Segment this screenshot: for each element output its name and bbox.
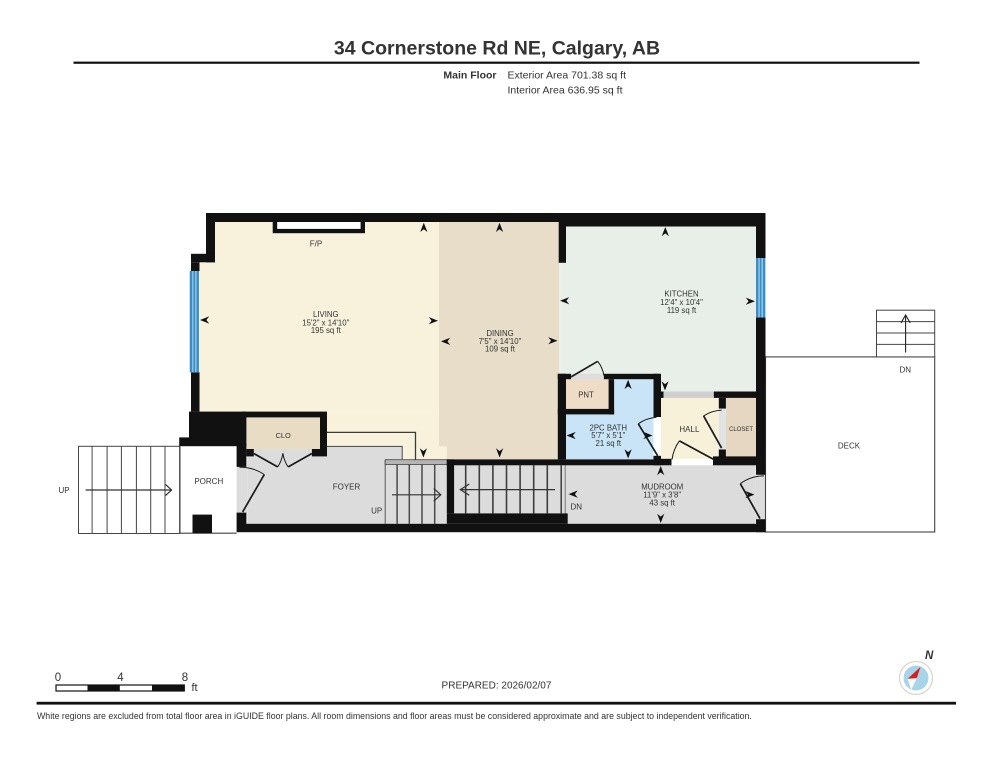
- svg-text:PNT: PNT: [578, 390, 594, 399]
- svg-text:4: 4: [117, 672, 124, 684]
- svg-text:8: 8: [182, 672, 188, 684]
- svg-text:195 sq ft: 195 sq ft: [311, 326, 342, 335]
- svg-text:34 Cornerstone Rd NE, Calgary,: 34 Cornerstone Rd NE, Calgary, AB: [334, 38, 660, 60]
- svg-text:White regions are excluded fro: White regions are excluded from total fl…: [37, 711, 752, 721]
- svg-text:109 sq ft: 109 sq ft: [485, 345, 516, 354]
- svg-text:21 sq ft: 21 sq ft: [596, 439, 622, 448]
- svg-text:ft: ft: [192, 682, 198, 694]
- svg-text:119 sq ft: 119 sq ft: [667, 306, 697, 315]
- svg-text:Main Floor: Main Floor: [443, 69, 496, 81]
- svg-text:Interior Area 636.95 sq ft: Interior Area 636.95 sq ft: [508, 84, 623, 96]
- svg-text:Exterior Area 701.38 sq ft: Exterior Area 701.38 sq ft: [508, 69, 627, 81]
- svg-text:DN: DN: [571, 503, 583, 512]
- svg-text:CLOSET: CLOSET: [729, 427, 753, 433]
- svg-text:DN: DN: [900, 365, 912, 374]
- svg-text:FOYER: FOYER: [333, 482, 361, 491]
- svg-text:43 sq ft: 43 sq ft: [649, 499, 675, 508]
- svg-text:0: 0: [55, 672, 61, 684]
- svg-text:PORCH: PORCH: [194, 477, 223, 486]
- svg-text:N: N: [925, 650, 934, 662]
- svg-text:F/P: F/P: [310, 240, 322, 249]
- svg-text:PREPARED: 2026/02/07: PREPARED: 2026/02/07: [442, 681, 552, 692]
- svg-text:UP: UP: [58, 486, 69, 495]
- svg-text:HALL: HALL: [679, 425, 700, 434]
- svg-text:CLO: CLO: [276, 431, 291, 440]
- svg-text:UP: UP: [371, 507, 382, 516]
- svg-text:DECK: DECK: [838, 442, 861, 451]
